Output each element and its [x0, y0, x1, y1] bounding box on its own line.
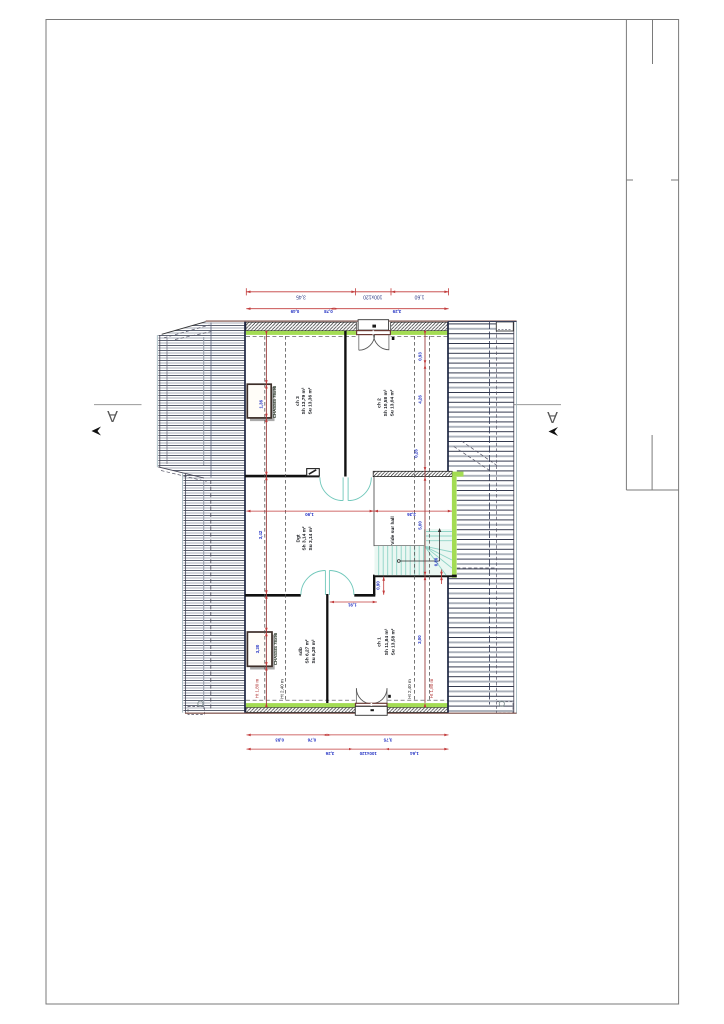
svg-text:3,42: 3,42: [258, 530, 263, 539]
svg-text:3,00: 3,00: [417, 635, 422, 644]
svg-text:0,76: 0,76: [307, 737, 316, 742]
svg-text:Sh 10,58 m²: Sh 10,58 m²: [383, 389, 389, 416]
svg-text:2,36: 2,36: [407, 512, 416, 517]
svg-text:Ht 2,40 m: Ht 2,40 m: [279, 679, 284, 699]
svg-text:ch 1: ch 1: [376, 637, 382, 647]
svg-text:Su 13,04 m²: Su 13,04 m²: [390, 389, 396, 416]
svg-text:Su 3,14 m²: Su 3,14 m²: [308, 526, 314, 550]
svg-text:3,29: 3,29: [392, 309, 401, 314]
svg-text:1,91: 1,91: [347, 603, 356, 608]
svg-text:Sh 3,14 m²: Sh 3,14 m²: [302, 526, 308, 550]
svg-text:1,64: 1,64: [410, 751, 419, 756]
svg-text:0,49: 0,49: [290, 309, 299, 314]
svg-text:1,36: 1,36: [259, 399, 264, 408]
svg-text:Sh 6,27 m²: Sh 6,27 m²: [305, 639, 311, 663]
svg-text:CHASSIS 78x98: CHASSIS 78x98: [272, 385, 277, 418]
svg-text:0,78: 0,78: [324, 309, 333, 314]
svg-text:Vide sur hall: Vide sur hall: [390, 516, 396, 544]
svg-text:4,26: 4,26: [418, 395, 423, 404]
svg-text:0,86: 0,86: [434, 557, 439, 566]
svg-text:3,26: 3,26: [325, 751, 334, 756]
svg-text:1,90: 1,90: [305, 512, 314, 517]
svg-text:A: A: [547, 408, 558, 425]
svg-text:1,60: 1,60: [414, 293, 424, 299]
svg-text:Ht 1,80 m: Ht 1,80 m: [429, 678, 434, 698]
svg-text:5,00: 5,00: [417, 521, 422, 530]
svg-text:CHASSIS 78x98: CHASSIS 78x98: [273, 632, 278, 665]
svg-text:100x120: 100x120: [363, 293, 382, 299]
svg-text:3,45: 3,45: [296, 293, 306, 299]
svg-text:0,93: 0,93: [418, 352, 423, 361]
svg-text:0,26: 0,26: [414, 449, 419, 458]
svg-text:Sh 11,84 m²: Sh 11,84 m²: [384, 628, 390, 655]
svg-text:100x120: 100x120: [359, 751, 377, 756]
svg-text:Su 13,36 m²: Su 13,36 m²: [308, 387, 314, 414]
svg-text:Dgt: Dgt: [295, 534, 301, 542]
svg-text:Ht 2,40 m: Ht 2,40 m: [407, 679, 412, 699]
svg-text:Su 13,58 m²: Su 13,58 m²: [390, 628, 396, 655]
svg-text:Ht 1,80 m: Ht 1,80 m: [254, 678, 259, 698]
svg-text:Sh 13,79 m²: Sh 13,79 m²: [301, 387, 307, 414]
svg-text:3,30: 3,30: [255, 644, 260, 653]
svg-text:3,75: 3,75: [383, 737, 392, 742]
svg-text:sdb: sdb: [298, 647, 304, 656]
svg-text:A: A: [107, 407, 118, 424]
svg-text:ch 2: ch 2: [377, 398, 383, 408]
svg-text:Su 6,20 m²: Su 6,20 m²: [311, 639, 317, 663]
svg-text:ch 3: ch 3: [295, 396, 301, 406]
svg-text:0,83: 0,83: [275, 737, 284, 742]
svg-text:0,90: 0,90: [376, 581, 381, 590]
